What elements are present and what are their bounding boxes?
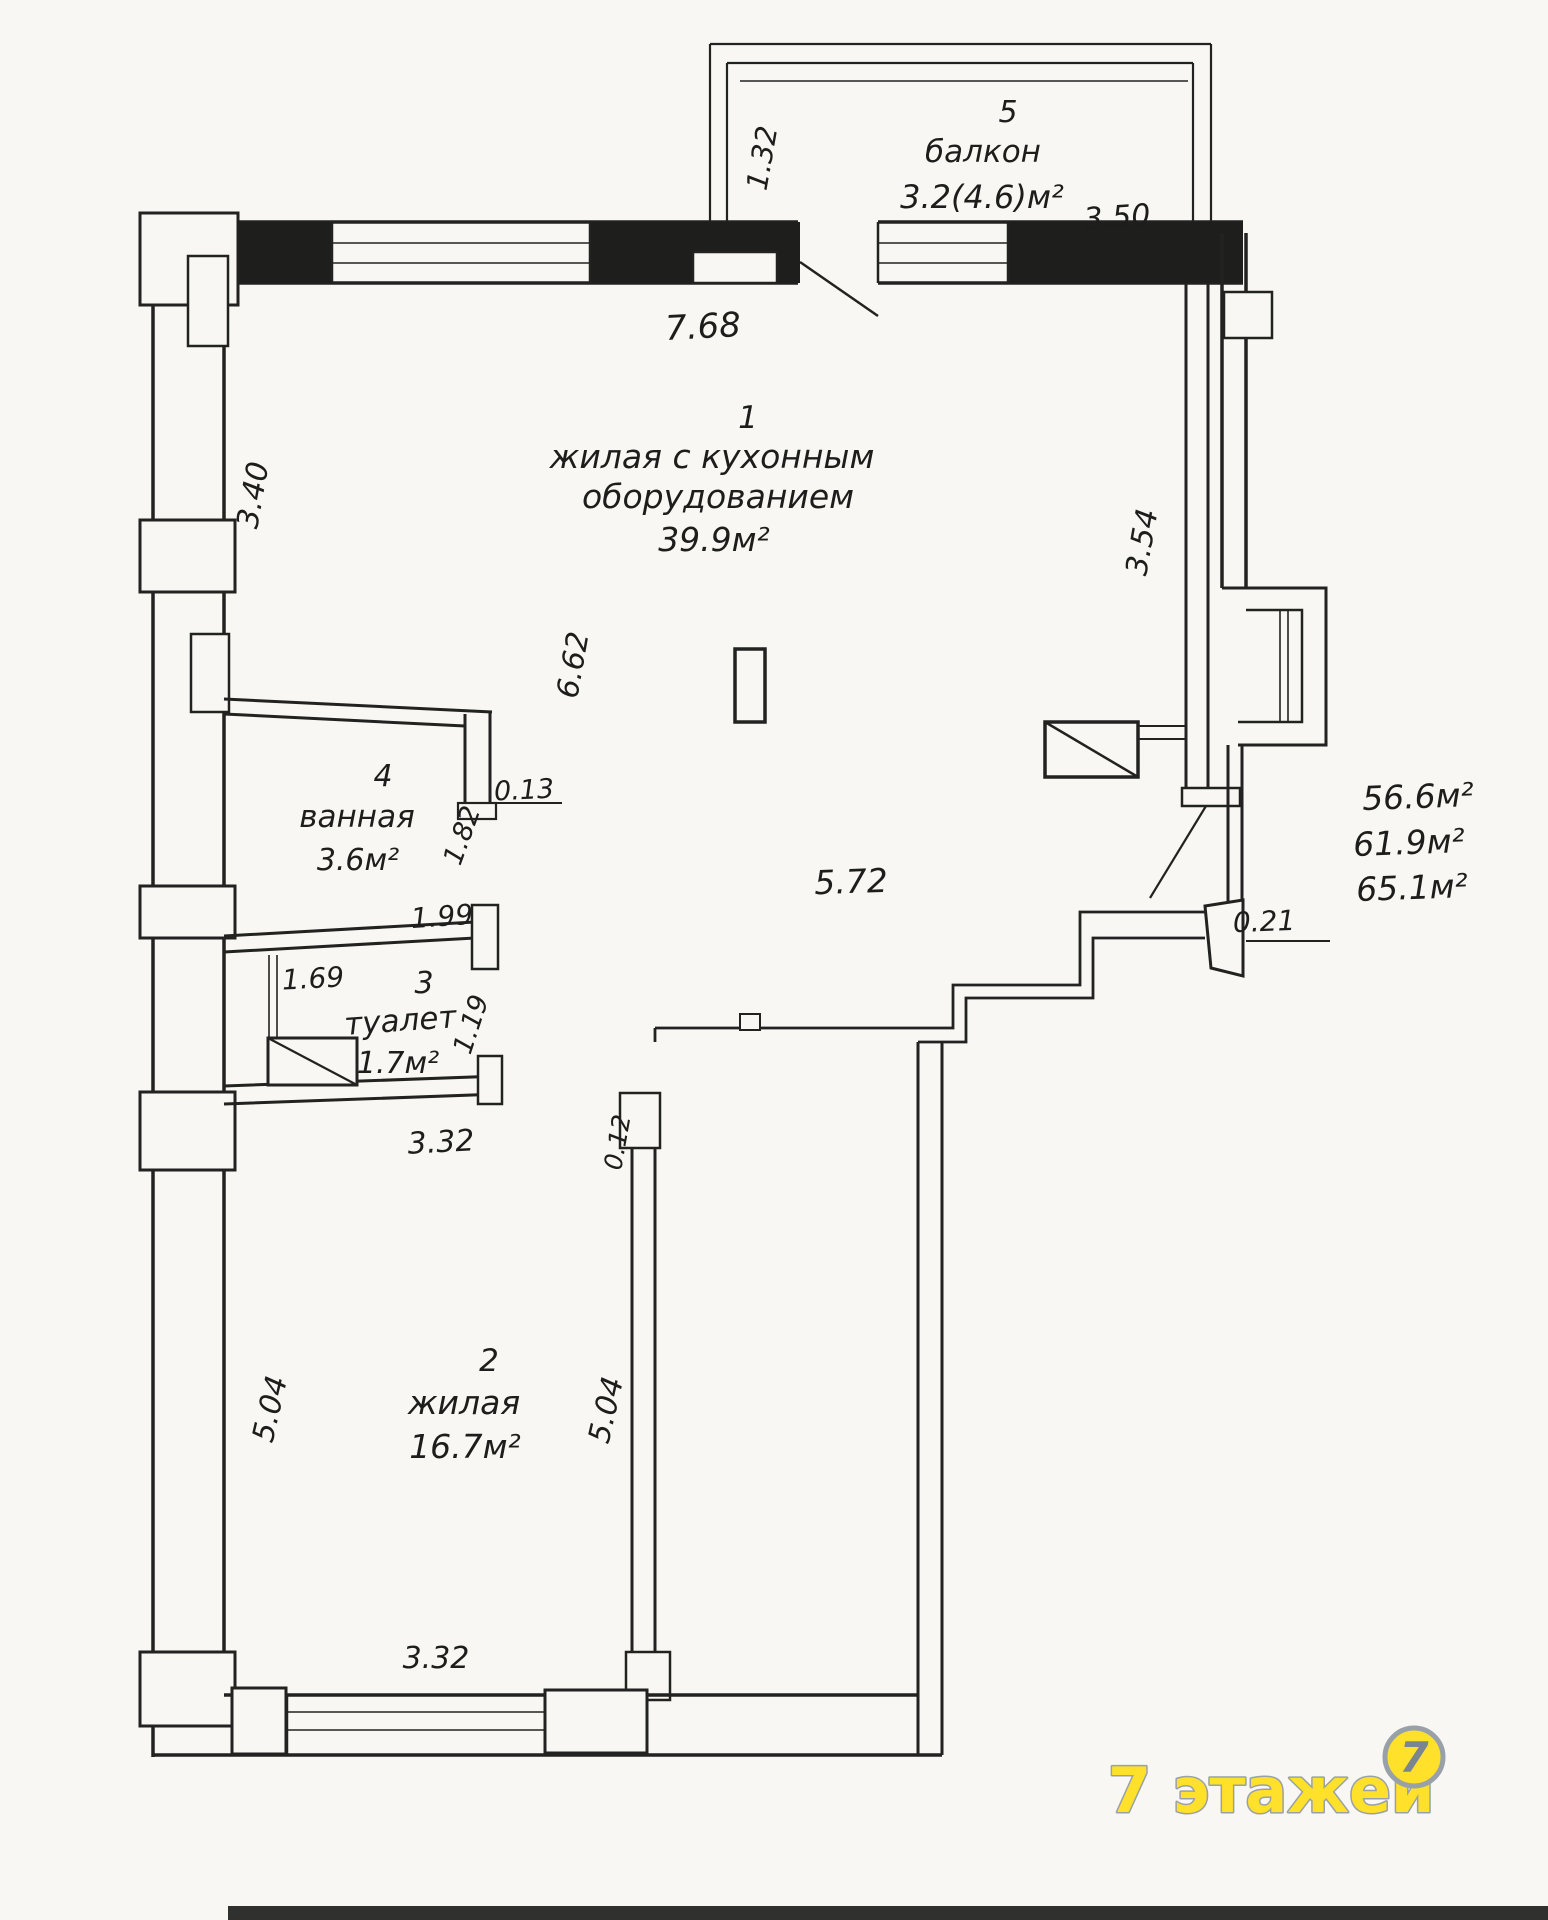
dim-top-width: 7.68: [664, 305, 742, 349]
dim-room2-width: 3.32: [403, 1641, 470, 1676]
floor-plan-svg: 5 балкон 3.2(4.6)м² 1 жилая с кухонным о…: [0, 0, 1548, 1920]
balcony-left-wall: [710, 44, 727, 222]
area-total: 61.9м²: [1352, 821, 1465, 864]
wall-tick: [740, 1014, 760, 1030]
dim-left-upper: 3.40: [230, 459, 276, 531]
corridor-walls: [655, 912, 1205, 1755]
room1-area: 39.9м²: [658, 520, 770, 559]
room1-right-wall: [1186, 283, 1208, 806]
dim-room2-height-right: 5.04: [582, 1374, 631, 1447]
wall-block: [232, 1688, 286, 1754]
room1-fixtures: [735, 649, 1186, 777]
room2-area: 16.7м²: [409, 1427, 521, 1466]
wall-step-block: [1224, 292, 1272, 338]
wall-pilaster: [140, 1092, 235, 1170]
wall-foot: [1182, 788, 1240, 806]
logo-digit: 7: [1399, 1733, 1429, 1782]
door-jamb: [472, 905, 498, 969]
wall-block: [545, 1690, 647, 1753]
room1-name-line1: жилая с кухонным: [549, 437, 875, 476]
bay-window-lines: [1280, 610, 1288, 722]
room-labels: 5 балкон 3.2(4.6)м² 1 жилая с кухонным о…: [299, 95, 1064, 1466]
dim-toilet-niche: 1.69: [281, 960, 345, 996]
window-sill-notch: [693, 252, 777, 283]
dim-bath-wall: 1.82: [438, 802, 488, 869]
room5-number: 5: [998, 95, 1017, 130]
room3-area: 1.7м²: [357, 1046, 439, 1081]
dim-balcony-depth: 1.32: [740, 123, 785, 193]
column: [735, 649, 765, 722]
room2-name: жилая: [407, 1383, 520, 1422]
room2-number: 2: [479, 1343, 499, 1379]
entry-side-wall: [1228, 745, 1242, 906]
hallway-right-wall: [918, 1042, 942, 1755]
left-wall: [140, 213, 238, 1757]
room5-name: балкон: [925, 134, 1041, 170]
dim-room1-height: 6.62: [550, 629, 596, 701]
area-summary: 56.6м² 61.9м² 65.1м²: [1352, 775, 1474, 909]
door-jamb: [478, 1056, 502, 1104]
dim-hall-width: 5.72: [814, 861, 889, 903]
dim-toilet-width: 3.32: [407, 1123, 476, 1161]
bay-inner-line: [1238, 610, 1302, 722]
wall-pilaster-inner: [188, 256, 228, 346]
kitchen-unit-connector: [1138, 726, 1186, 739]
top-wall: [153, 222, 1243, 316]
corridor-wall-lower-line: [918, 938, 1205, 1042]
dimension-labels: 1.32 3.50 7.68 3.40 3.54 6.62 0.13 1.82 …: [230, 123, 1295, 1676]
watermark-logo: 7 этажей 7: [1108, 1728, 1443, 1827]
bathroom-top-wall: [224, 699, 492, 726]
dim-wall-step: 0.13: [493, 773, 555, 807]
dim-right-upper: 3.54: [1119, 506, 1165, 578]
balcony-right-wall: [1193, 44, 1211, 233]
bathroom-toilet-walls: [224, 699, 562, 1104]
room1-name-line2: оборудованием: [582, 477, 854, 516]
outer-right-wall: [1222, 233, 1246, 588]
floorplan-scan: 5 балкон 3.2(4.6)м² 1 жилая с кухонным о…: [0, 0, 1548, 1920]
corridor-wall-upper-line: [655, 912, 1205, 1028]
balcony-door-leaf-line: [800, 262, 878, 316]
room3-name: туалет: [343, 999, 459, 1043]
dim-room2-height-left: 5.04: [246, 1373, 295, 1446]
dim-balcony-width: 3.50: [1082, 198, 1151, 238]
area-with-balcony: 65.1м²: [1355, 866, 1468, 909]
bottom-wall: [153, 1688, 942, 1755]
right-walls: [1150, 233, 1330, 976]
room3-number: 3: [414, 966, 433, 1001]
room5-area: 3.2(4.6)м²: [900, 178, 1064, 216]
room4-area: 3.6м²: [317, 843, 399, 878]
area-living: 56.6м²: [1361, 775, 1474, 818]
duct-lines: [269, 955, 277, 1038]
wall-pilaster: [140, 1652, 235, 1726]
bottom-window-glazing: [287, 1712, 545, 1730]
room2-right-wall: [632, 1148, 655, 1700]
area-leader-line: [1150, 806, 1206, 898]
wall-pilaster-inner: [191, 634, 229, 712]
dim-entry-wall: 0.21: [1232, 904, 1295, 939]
wall-pilaster: [140, 520, 235, 592]
room4-name: ванная: [299, 799, 414, 835]
bottom-window-ticks: [287, 1695, 545, 1755]
dim-bath-width: 1.99: [410, 898, 474, 935]
room4-number: 4: [373, 759, 392, 794]
wall-pilaster: [140, 886, 235, 938]
bottom-cropped-strip: [228, 1906, 1548, 1920]
room1-number: 1: [738, 400, 758, 436]
